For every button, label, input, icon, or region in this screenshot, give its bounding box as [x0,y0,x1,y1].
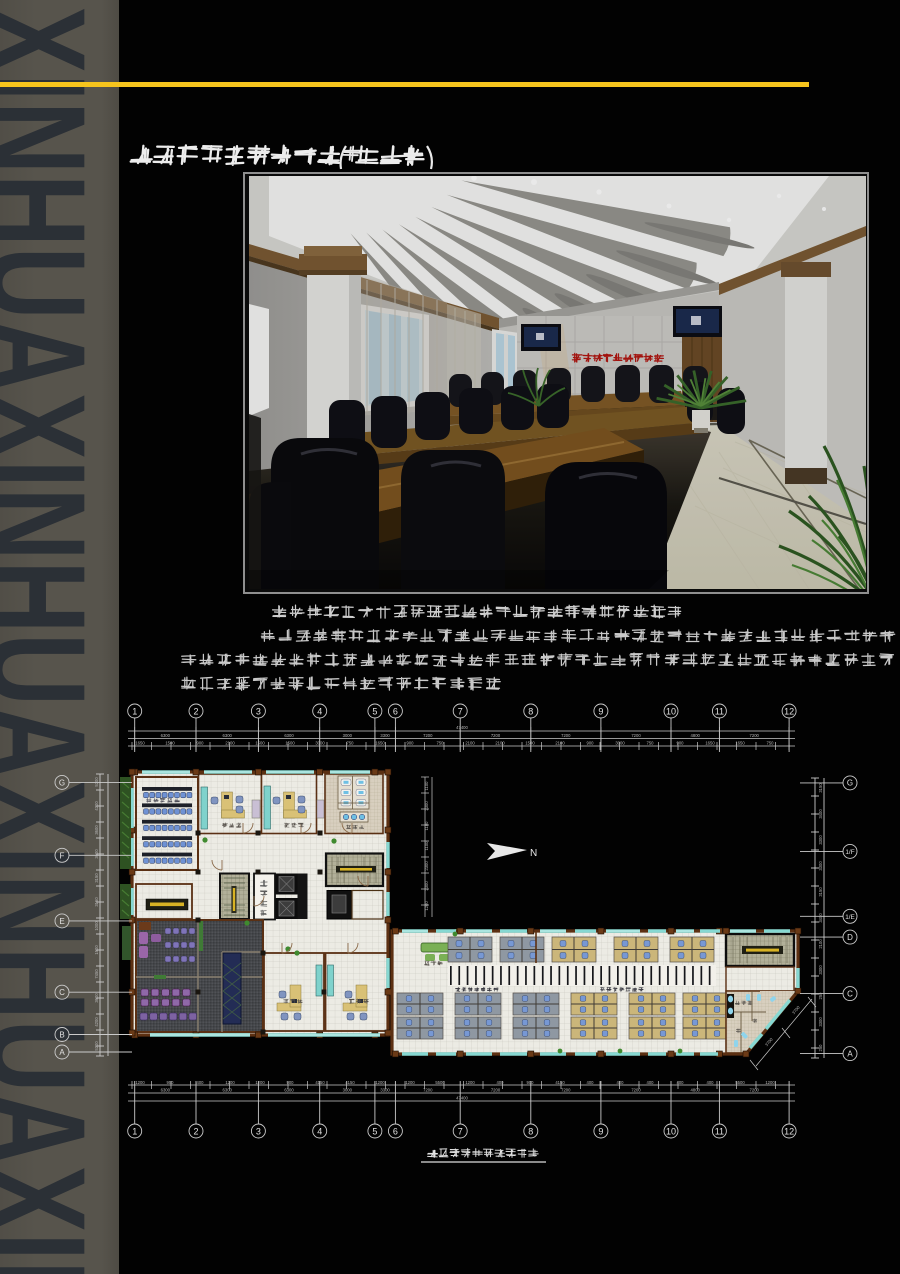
svg-text:1500: 1500 [525,741,535,746]
svg-text:2100: 2100 [495,741,505,746]
svg-text:8: 8 [528,1127,533,1137]
svg-text:1500: 1500 [255,741,265,746]
svg-text:3000: 3000 [343,733,353,738]
svg-text:9: 9 [598,1127,603,1137]
svg-text:7200: 7200 [561,1088,571,1093]
svg-text:1: 1 [132,707,137,717]
svg-text:3150: 3150 [818,783,823,793]
svg-text:1650: 1650 [135,741,145,746]
svg-text:3000: 3000 [615,741,625,746]
svg-text:1650: 1650 [375,741,385,746]
svg-text:1200: 1200 [465,1080,475,1085]
svg-text:3300: 3300 [380,1088,390,1093]
svg-text:A: A [847,1049,853,1058]
svg-text:3300: 3300 [818,1017,823,1027]
svg-text:10: 10 [666,1127,676,1137]
svg-text:3: 3 [256,707,261,717]
svg-text:N: N [530,848,537,859]
svg-text:1500: 1500 [94,945,99,955]
svg-text:900: 900 [587,741,595,746]
svg-text:2100: 2100 [225,741,235,746]
svg-text:3300: 3300 [818,965,823,975]
svg-text:11: 11 [715,1127,724,1137]
svg-text:7200: 7200 [491,733,501,738]
svg-text:750: 750 [647,741,655,746]
svg-text:1100: 1100 [424,821,429,831]
svg-text:750: 750 [437,741,445,746]
svg-text:8: 8 [528,707,533,717]
svg-text:900: 900 [287,1080,295,1085]
svg-text:4200: 4200 [94,1017,99,1027]
svg-text:6300: 6300 [284,733,294,738]
svg-text:1200: 1200 [424,901,429,911]
svg-text:6300: 6300 [284,1088,294,1093]
svg-text:47400: 47400 [456,725,468,730]
svg-text:2300: 2300 [424,861,429,871]
svg-text:4150: 4150 [345,1080,355,1085]
svg-text:950: 950 [167,1080,175,1085]
svg-text:1100: 1100 [424,841,429,851]
svg-text:F: F [60,851,65,860]
svg-text:6: 6 [393,707,398,717]
svg-text:1200: 1200 [255,1080,265,1085]
svg-text:B: B [59,1031,64,1040]
svg-text:9: 9 [598,707,603,717]
svg-text:C: C [847,989,853,998]
svg-text:3150: 3150 [94,897,99,907]
svg-text:2: 2 [193,707,198,717]
svg-text:250: 250 [818,992,823,1000]
svg-text:47400: 47400 [456,1096,468,1101]
svg-text:2: 2 [193,1127,198,1137]
svg-text:6300: 6300 [223,1088,233,1093]
svg-text:1650: 1650 [735,741,745,746]
svg-text:2300: 2300 [424,801,429,811]
svg-text:3300: 3300 [818,861,823,871]
svg-text:2100: 2100 [555,741,565,746]
svg-text:5500: 5500 [735,1080,745,1085]
svg-text:2100: 2100 [818,939,823,949]
svg-text:1200: 1200 [225,1080,235,1085]
svg-text:4800: 4800 [691,733,701,738]
svg-text:5200: 5200 [94,777,99,787]
svg-text:12: 12 [784,707,794,717]
svg-text:10: 10 [666,707,676,717]
svg-text:1650: 1650 [705,741,715,746]
svg-text:1200: 1200 [375,1080,385,1085]
svg-text:900: 900 [527,1080,535,1085]
svg-text:3600: 3600 [94,993,99,1003]
svg-text:7450: 7450 [94,969,99,979]
svg-text:750: 750 [347,741,355,746]
svg-text:1200: 1200 [765,1080,775,1085]
svg-text:1200: 1200 [135,1080,145,1085]
svg-text:3000: 3000 [343,1088,353,1093]
svg-text:400: 400 [197,1080,205,1085]
svg-text:4150: 4150 [555,1080,565,1085]
svg-text:5500: 5500 [435,1080,445,1085]
svg-text:7200: 7200 [423,733,433,738]
svg-text:G: G [59,778,65,787]
svg-text:1200: 1200 [405,1080,415,1085]
svg-text:3400: 3400 [818,913,823,923]
svg-text:1500: 1500 [165,741,175,746]
svg-text:750: 750 [767,741,775,746]
svg-text:3150: 3150 [94,873,99,883]
svg-text:7: 7 [458,707,463,717]
svg-text:1/F: 1/F [845,849,854,856]
svg-text:5200: 5200 [94,1041,99,1051]
svg-text:900: 900 [407,741,415,746]
svg-text:6300: 6300 [161,1088,171,1093]
svg-text:4: 4 [317,707,322,717]
svg-text:400: 400 [677,1080,685,1085]
svg-text:400: 400 [587,1080,595,1085]
svg-text:7200: 7200 [631,1088,641,1093]
svg-text:1500: 1500 [285,741,295,746]
svg-text:3000: 3000 [315,741,325,746]
svg-text:6: 6 [393,1127,398,1137]
svg-text:3400: 3400 [818,809,823,819]
svg-text:1: 1 [132,1127,137,1137]
svg-text:7200: 7200 [561,733,571,738]
svg-text:2300: 2300 [424,881,429,891]
svg-text:3300: 3300 [380,733,390,738]
svg-text:900: 900 [677,741,685,746]
svg-text:3600: 3600 [94,825,99,835]
svg-text:7200: 7200 [750,1088,760,1093]
svg-text:6300: 6300 [223,733,233,738]
svg-text:3150: 3150 [818,887,823,897]
svg-text:1000: 1000 [94,921,99,931]
svg-text:3600: 3600 [94,849,99,859]
svg-text:400: 400 [617,1080,625,1085]
svg-text:G: G [847,779,853,788]
svg-text:3: 3 [256,1127,261,1137]
svg-text:E: E [59,917,64,926]
svg-text:250: 250 [818,1044,823,1052]
svg-text:5: 5 [372,1127,377,1137]
svg-text:1/E: 1/E [845,914,855,921]
svg-text:A: A [59,1048,65,1057]
svg-text:6300: 6300 [161,733,171,738]
svg-text:5: 5 [372,707,377,717]
svg-text:12: 12 [784,1127,794,1137]
svg-text:3300: 3300 [818,835,823,845]
svg-text:400: 400 [497,1080,505,1085]
svg-text:400: 400 [707,1080,715,1085]
svg-text:11: 11 [715,707,724,717]
svg-text:7200: 7200 [491,1088,501,1093]
svg-text:900: 900 [197,741,205,746]
svg-text:C: C [59,988,65,997]
svg-text:2100: 2100 [465,741,475,746]
svg-text:7: 7 [458,1127,463,1137]
svg-text:4800: 4800 [691,1088,701,1093]
svg-text:7200: 7200 [750,733,760,738]
svg-text:1100: 1100 [424,781,429,791]
svg-text:7200: 7200 [423,1088,433,1093]
svg-text:4200: 4200 [94,801,99,811]
svg-text:400: 400 [647,1080,655,1085]
svg-text:4: 4 [317,1127,322,1137]
svg-text:D: D [847,933,853,942]
svg-text:4150: 4150 [315,1080,325,1085]
svg-text:7200: 7200 [631,733,641,738]
